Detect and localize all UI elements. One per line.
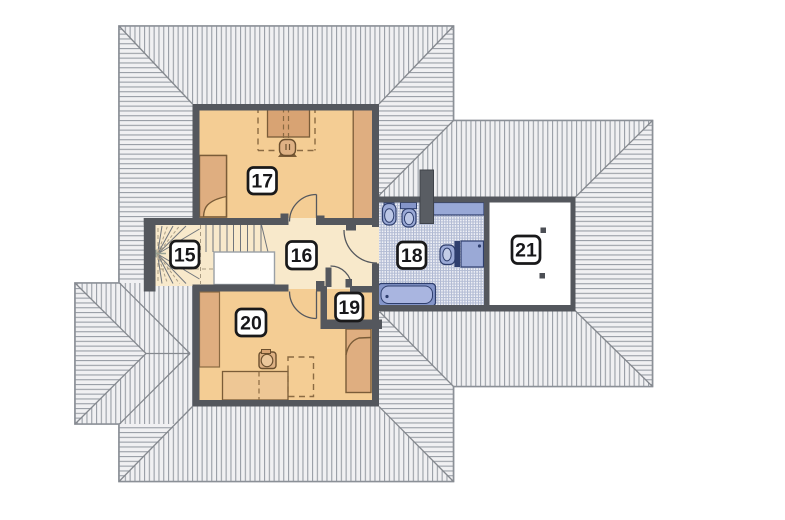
svg-text:19: 19 (338, 297, 360, 319)
svg-text:21: 21 (515, 240, 537, 262)
svg-text:20: 20 (240, 313, 262, 335)
svg-text:16: 16 (291, 245, 313, 267)
svg-text:15: 15 (174, 245, 196, 267)
svg-text:18: 18 (401, 245, 423, 267)
svg-text:17: 17 (251, 171, 273, 193)
